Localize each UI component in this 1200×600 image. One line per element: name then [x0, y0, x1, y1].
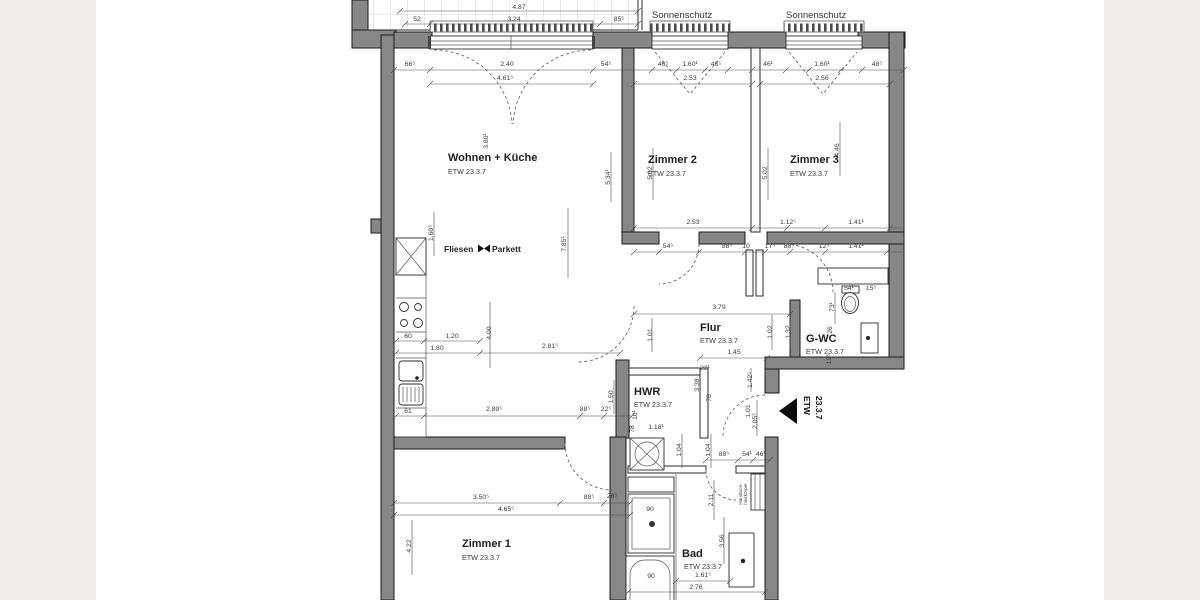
room-etw-gwc: ETW 23.3.7 — [806, 347, 844, 356]
window-zimmer3 — [786, 36, 862, 49]
sonnenschutz-box-zimmer3 — [784, 21, 864, 32]
dimension-label: 54¹ — [844, 285, 855, 292]
entrance-label-etw: ETW — [802, 396, 812, 416]
dimension-label: 46⁵ — [658, 61, 669, 68]
dimension-label: 3.50⁵ — [473, 494, 489, 501]
kitchen-tap — [415, 376, 419, 380]
wall-wohnen-zimmer2 — [622, 48, 634, 232]
dimension-label: 1.32 — [785, 325, 792, 338]
dimension-label: 1.60¹ — [814, 61, 830, 68]
gwc-shelf — [818, 268, 888, 284]
dimension-label: 52 — [413, 16, 421, 23]
dimension-label: 1.45 — [727, 349, 740, 356]
room-etw-zimmer3: ETW 23.3.7 — [790, 169, 828, 178]
page-right-band — [1104, 0, 1200, 600]
dimension-label: 1.41¹ — [848, 243, 864, 250]
wall-zimmer1-bad — [610, 437, 626, 600]
room-label-zimmer2: Zimmer 2 — [648, 154, 697, 166]
room-label-zimmer1: Zimmer 1 — [462, 538, 511, 550]
door-swings — [434, 50, 857, 500]
dimension-label: 54¹ — [742, 451, 753, 458]
dimension-label: 46⁵ — [756, 451, 767, 458]
dimension-label: 5.34¹ — [605, 169, 612, 185]
dimension-label: 3.79 — [712, 304, 725, 311]
radiator-note-line2: heizkörper — [743, 483, 748, 505]
sonnenschutz-label-left: Sonnenschutz — [652, 10, 712, 21]
dimension-label: 60 — [404, 333, 412, 340]
room-label-flur: Flur — [700, 322, 721, 334]
shower-drain — [649, 521, 655, 527]
dimension-label: 4.65⁵ — [498, 506, 514, 513]
dimension-label: 4.22 — [406, 539, 413, 552]
dimension-label: 1.41¹ — [848, 219, 864, 226]
dimension-label: 88⁵ — [722, 243, 733, 250]
dimension-label: 10¹ — [632, 409, 639, 420]
material-label-parkett: Parkett — [492, 244, 521, 254]
gwc-tap — [866, 336, 870, 340]
dimension-label: 1.04 — [705, 443, 712, 456]
dimension-label: 2.56 — [815, 75, 828, 82]
room-etw-zimmer2: ETW 23.3.7 — [648, 169, 686, 178]
window-zimmer2 — [652, 36, 728, 49]
wall-entry-top — [765, 369, 779, 393]
dimension-label: 5.02 — [762, 166, 769, 179]
stove-burner — [401, 320, 408, 327]
dimension-label: 3.38 — [694, 378, 701, 391]
floorplan-page: 4.87523.2485⁵66⁵2.4054⁵46⁵1.60¹46⁵46¹1.6… — [0, 0, 1200, 600]
stove-burner — [400, 303, 409, 312]
wall-top-a — [394, 32, 432, 48]
dimension-label: 1.50 — [608, 390, 615, 403]
dimension-label: 2.81⁵ — [542, 343, 558, 350]
dimension-label: 54⁵ — [663, 243, 674, 250]
material-change-icon — [484, 245, 490, 253]
wall-zimmer1-top — [394, 437, 565, 449]
wall-top-pier2 — [728, 32, 786, 48]
dimension-label: 88⁵ — [580, 406, 591, 413]
dimension-label: 3.56 — [719, 534, 726, 547]
room-label-gwc: G-WC — [806, 333, 837, 345]
wall-hwr-left — [616, 360, 629, 438]
dimension-label: 90 — [647, 573, 655, 580]
kitchen-sink-basin — [399, 361, 423, 381]
wall-gwc-bottom — [765, 357, 904, 369]
dimension-label: 88⁵ — [719, 451, 730, 458]
dimension-label: 1.01 — [647, 328, 654, 341]
dimension-label: 73¹ — [829, 301, 836, 312]
dimension-label: 54⁵ — [601, 61, 612, 68]
stove-burner — [414, 319, 423, 328]
dimension-label: 4.87 — [512, 4, 525, 11]
vanity-tap — [741, 559, 745, 563]
wall-bad-right — [765, 437, 778, 600]
dimension-label: 1.20 — [445, 333, 458, 340]
room-label-wohnen: Wohnen + Küche — [448, 152, 537, 164]
dimension-label: 1.61⁵ — [695, 572, 711, 579]
dimension-label: 1.04 — [676, 443, 683, 456]
dimension-label: 2.89⁵ — [486, 406, 502, 413]
material-label-fliesen: Fliesen — [444, 244, 473, 254]
dimension-label: 1.12⁵ — [780, 219, 796, 226]
dimension-label: 17⁵ — [765, 243, 776, 250]
entrance-label-number: 23.3.7 — [814, 396, 824, 420]
stove-burner — [415, 304, 422, 311]
dimension-label: 2.53 — [686, 219, 699, 226]
entrance-arrow-icon — [779, 398, 797, 424]
dimension-label: 2.05⁵ — [752, 413, 759, 429]
dimension-label: 3.80¹ — [483, 133, 490, 149]
toilet — [842, 293, 859, 314]
room-etw-wohnen: ETW 23.3.7 — [448, 167, 486, 176]
dimension-label: 4.00 — [486, 326, 493, 339]
dimension-label: 1.01 — [745, 404, 752, 417]
dimension-label: 66⁵ — [405, 61, 416, 68]
dimension-label: 26⁵ — [607, 493, 618, 500]
floorplan-svg: 4.87523.2485⁵66⁵2.4054⁵46⁵1.60¹46⁵46¹1.6… — [0, 0, 1200, 600]
dimension-label: 2.76 — [689, 584, 702, 591]
page-left-band — [0, 0, 96, 600]
partition-hwr-flur — [700, 368, 708, 438]
sonnenschutz-label-right: Sonnenschutz — [786, 10, 846, 21]
dimension-label: 61 — [404, 408, 412, 415]
dimension-label: 85⁵ — [614, 16, 625, 23]
partition-hwr-top — [629, 368, 700, 375]
dimension-label: 1.60⁵ — [428, 225, 435, 241]
partition-bad-top-b — [736, 466, 765, 473]
wall-top-pier1 — [593, 32, 652, 48]
dimension-label: 4.61⁵ — [497, 75, 513, 82]
dimension-label: 12⁵ — [819, 243, 830, 250]
towel-radiator — [751, 474, 765, 510]
dimension-label: 88⁵ — [584, 494, 595, 501]
dimension-label: 15⁵ — [866, 285, 877, 292]
room-etw-bad: ETW 23.3.7 — [684, 562, 722, 571]
room-etw-zimmer1: ETW 23.3.7 — [462, 553, 500, 562]
room-etw-hwr: ETW 23.3.7 — [634, 400, 672, 409]
door-leaf-b — [756, 250, 763, 296]
wall-flur-top-a — [622, 232, 659, 244]
door-leaf-a — [746, 250, 753, 296]
dimension-label: 46¹ — [763, 61, 774, 68]
dimension-label: 1.42⁵ — [747, 372, 754, 388]
dimension-label: 1.02 — [767, 325, 774, 338]
room-label-hwr: HWR — [634, 386, 660, 398]
window-wohnen — [430, 36, 593, 49]
dimension-label: 10 — [742, 243, 750, 250]
entrance-marker: ETW 23.3.7 — [779, 396, 824, 424]
dimension-label: 46⁵ — [711, 61, 722, 68]
material-change-icon — [478, 245, 484, 253]
dimension-label: 2.11 — [708, 493, 715, 506]
bath-cabinet — [628, 477, 674, 492]
room-label-bad: Bad — [682, 548, 703, 560]
wall-left — [381, 35, 394, 600]
dimension-label: 88⁵ — [784, 243, 795, 250]
dimension-label: 2.53 — [683, 75, 696, 82]
dimension-label: 1.80 — [430, 345, 443, 352]
dimension-label: 22¹ — [700, 365, 711, 372]
dimension-label: 1.60¹ — [682, 61, 698, 68]
dimension-label: 90 — [646, 506, 654, 513]
dimension-label: 3.24 — [507, 16, 520, 23]
room-label-zimmer3: Zimmer 3 — [790, 154, 839, 166]
dimension-label: 22⁵ — [601, 406, 612, 413]
dimension-label: 1.18¹ — [648, 424, 664, 431]
dimension-label: 76 — [706, 394, 713, 402]
sonnenschutz-box-zimmer2 — [650, 21, 730, 32]
wall-left-stub — [371, 219, 381, 233]
dimension-label: 2.40 — [500, 61, 513, 68]
partition-zimmer2-zimmer3 — [751, 48, 760, 232]
dimension-label: 7.85¹ — [561, 236, 568, 252]
dimension-label: 48⁵ — [872, 61, 883, 68]
room-etw-flur: ETW 23.3.7 — [700, 336, 738, 345]
dimension-label: 78 — [629, 425, 636, 433]
